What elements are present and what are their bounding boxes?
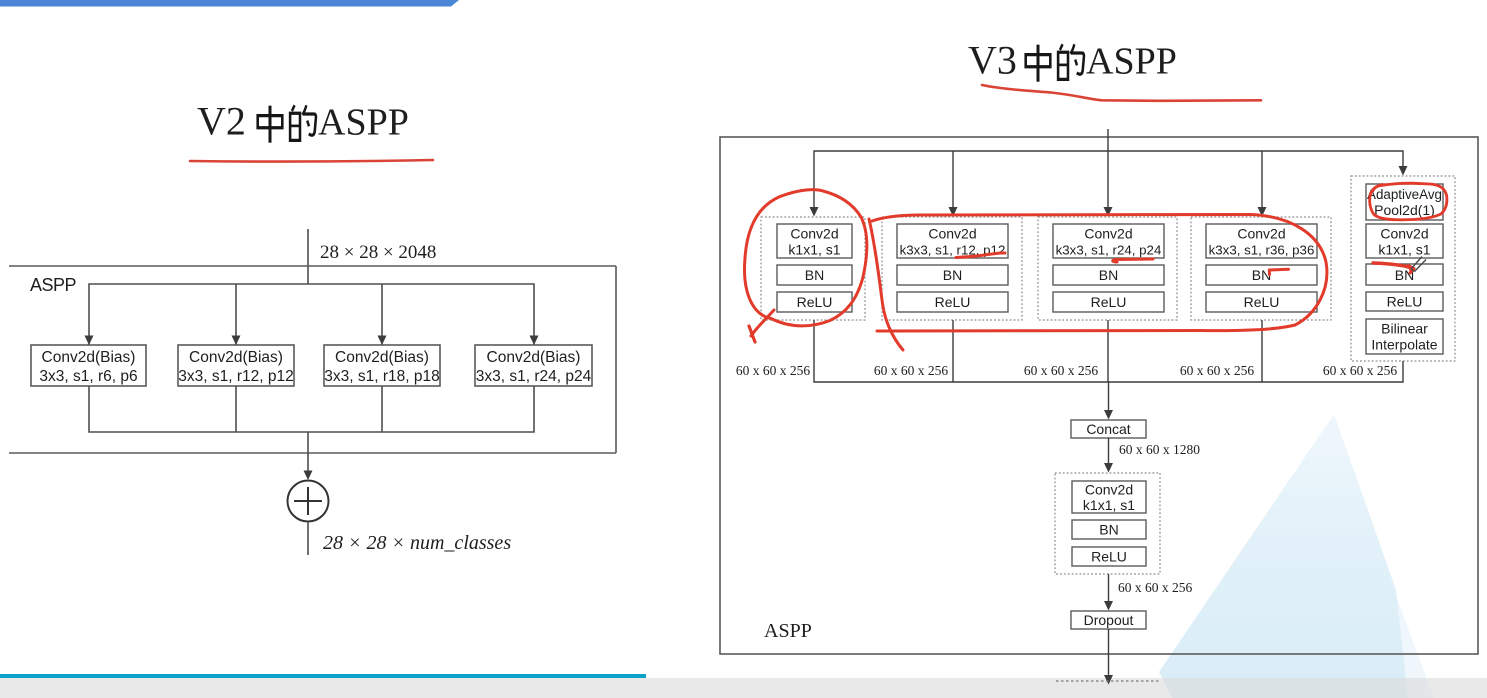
svg-text:ASPP: ASPP xyxy=(318,102,409,144)
svg-text:Conv2d: Conv2d xyxy=(1380,226,1428,242)
svg-text:k3x3, s1, r36, p36: k3x3, s1, r36, p36 xyxy=(1209,243,1315,258)
svg-text:60 x 60 x 256: 60 x 60 x 256 xyxy=(874,363,949,378)
svg-text:Conv2d(Bias): Conv2d(Bias) xyxy=(189,349,283,366)
svg-text:3x3, s1, r6, p6: 3x3, s1, r6, p6 xyxy=(39,368,137,385)
svg-text:ASPP: ASPP xyxy=(30,275,77,295)
svg-text:3x3, s1, r24, p24: 3x3, s1, r24, p24 xyxy=(476,368,592,385)
svg-text:ASPP: ASPP xyxy=(764,620,812,642)
svg-text:3x3, s1, r12, p12: 3x3, s1, r12, p12 xyxy=(178,368,293,385)
svg-text:V3: V3 xyxy=(968,38,1017,83)
svg-text:Conv2d(Bias): Conv2d(Bias) xyxy=(487,349,581,366)
svg-text:BN: BN xyxy=(805,267,824,283)
svg-text:ReLU: ReLU xyxy=(1091,549,1127,565)
svg-text:Conv2d(Bias): Conv2d(Bias) xyxy=(335,349,429,366)
svg-text:Bilinear: Bilinear xyxy=(1381,321,1428,337)
svg-text:Conv2d: Conv2d xyxy=(928,226,976,242)
svg-text:3x3, s1, r18, p18: 3x3, s1, r18, p18 xyxy=(324,368,439,385)
svg-text:Conv2d: Conv2d xyxy=(1237,226,1285,242)
svg-text:ReLU: ReLU xyxy=(797,294,833,310)
svg-text:60 x 60 x 256: 60 x 60 x 256 xyxy=(1323,363,1398,378)
svg-text:Dropout: Dropout xyxy=(1084,612,1134,628)
svg-text:BN: BN xyxy=(1099,522,1118,538)
svg-text:k3x3, s1, r24, p24: k3x3, s1, r24, p24 xyxy=(1056,243,1162,258)
svg-text:60 x 60 x 256: 60 x 60 x 256 xyxy=(1118,580,1193,595)
svg-text:ReLU: ReLU xyxy=(1387,294,1423,310)
svg-text:Conv2d: Conv2d xyxy=(1084,226,1132,242)
svg-text:60 x 60 x 256: 60 x 60 x 256 xyxy=(1180,363,1255,378)
svg-text:Conv2d: Conv2d xyxy=(1085,482,1133,498)
svg-text:BN: BN xyxy=(943,267,962,283)
svg-text:V2: V2 xyxy=(197,99,246,144)
svg-text:Interpolate: Interpolate xyxy=(1371,337,1437,353)
svg-text:Pool2d(1): Pool2d(1) xyxy=(1374,202,1435,218)
svg-text:28 × 28 × num_classes: 28 × 28 × num_classes xyxy=(323,532,511,554)
svg-text:BN: BN xyxy=(1099,267,1118,283)
svg-text:Concat: Concat xyxy=(1086,421,1130,437)
svg-text:60 x 60 x 256: 60 x 60 x 256 xyxy=(736,363,811,378)
svg-text:ASPP: ASPP xyxy=(1086,41,1177,83)
svg-text:k1x1, s1: k1x1, s1 xyxy=(788,242,840,258)
svg-text:Conv2d: Conv2d xyxy=(790,226,838,242)
svg-text:60 x 60 x 256: 60 x 60 x 256 xyxy=(1024,363,1099,378)
svg-text:ReLU: ReLU xyxy=(1091,294,1127,310)
svg-text:k1x1, s1: k1x1, s1 xyxy=(1083,497,1135,513)
svg-text:k1x1, s1: k1x1, s1 xyxy=(1378,242,1430,258)
svg-text:28 × 28 × 2048: 28 × 28 × 2048 xyxy=(320,242,436,263)
svg-text:AdaptiveAvg: AdaptiveAvg xyxy=(1367,187,1442,202)
svg-text:ReLU: ReLU xyxy=(935,294,971,310)
svg-text:Conv2d(Bias): Conv2d(Bias) xyxy=(42,349,136,366)
svg-text:60 x 60 x 1280: 60 x 60 x 1280 xyxy=(1119,442,1200,457)
svg-text:ReLU: ReLU xyxy=(1244,294,1280,310)
